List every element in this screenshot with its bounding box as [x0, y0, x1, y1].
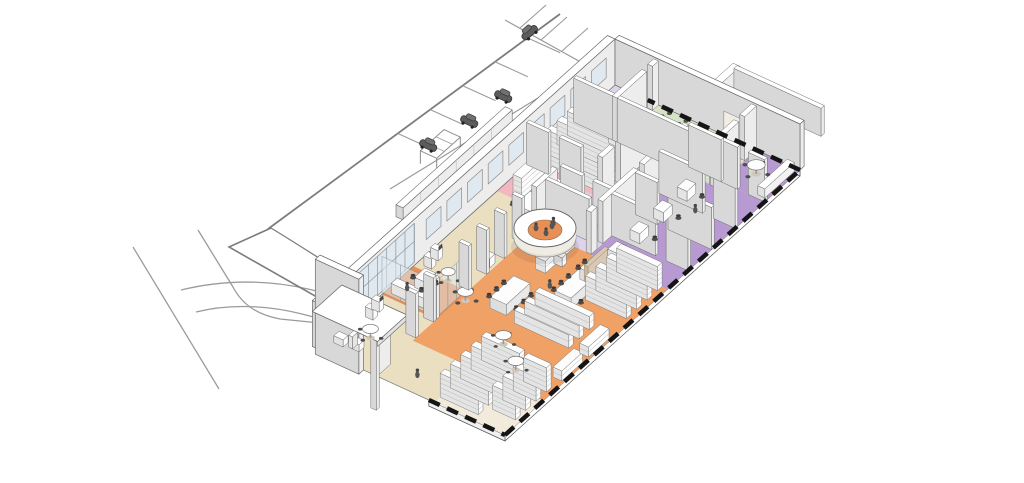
circular-info-desk [511, 209, 579, 264]
library-axonometric-rendering: Axonometric cutaway rendering of a singl… [0, 0, 1024, 483]
page: Axonometric cutaway rendering of a singl… [0, 0, 1024, 483]
